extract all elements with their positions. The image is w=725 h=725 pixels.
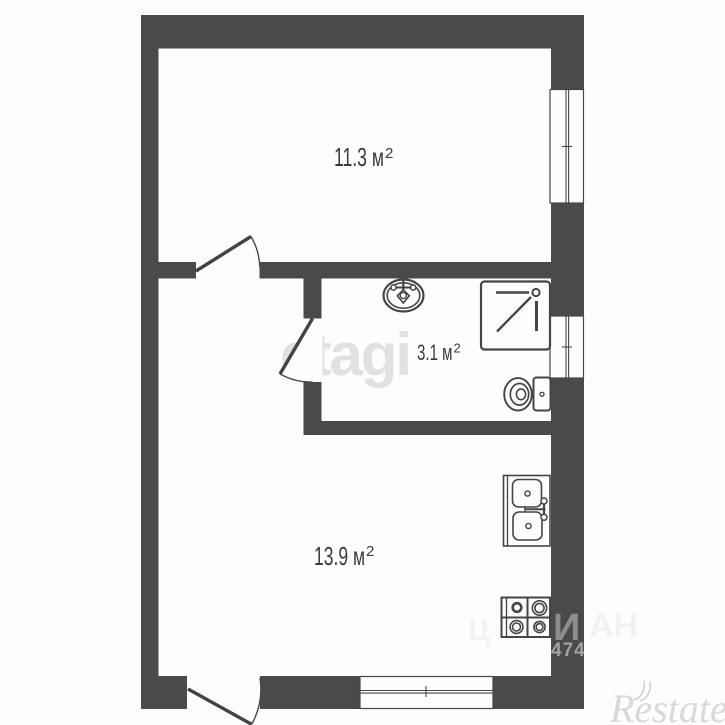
svg-text:Restate: Restate [609, 686, 725, 725]
svg-text:2: 2 [366, 543, 374, 560]
svg-text:474: 474 [551, 640, 586, 661]
svg-text:2: 2 [454, 341, 461, 356]
svg-text:13.9 м: 13.9 м [314, 541, 365, 571]
svg-text:11.3 м: 11.3 м [334, 142, 384, 172]
svg-text:АН: АН [589, 607, 638, 645]
svg-text:3.1 м: 3.1 м [417, 340, 453, 365]
svg-text:2: 2 [385, 145, 393, 162]
svg-text:Ц: Ц [468, 614, 490, 647]
